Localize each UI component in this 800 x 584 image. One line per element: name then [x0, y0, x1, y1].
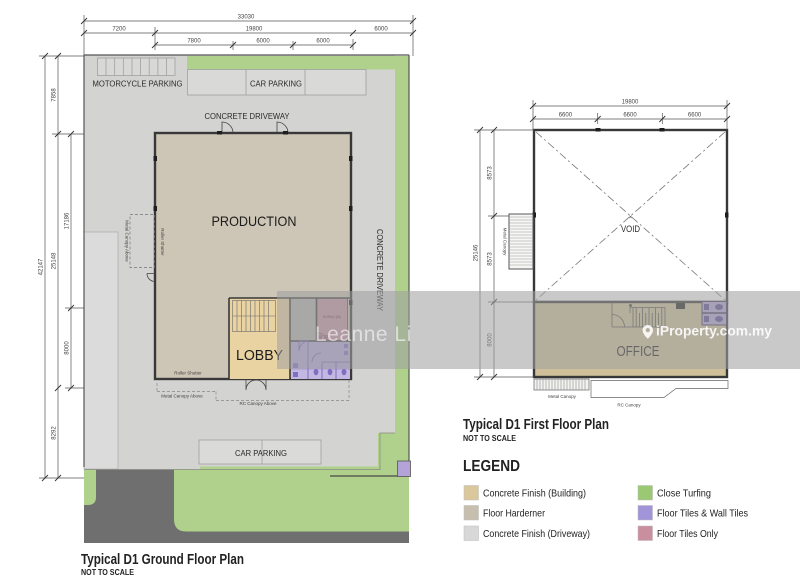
svg-text:7800: 7800 [187, 39, 201, 45]
svg-text:Metal Canopy: Metal Canopy [503, 228, 508, 257]
svg-text:NOT TO SCALE: NOT TO SCALE [81, 568, 135, 577]
svg-text:Roller Shutter: Roller Shutter [160, 228, 165, 256]
svg-text:Typical D1 First Floor Plan: Typical D1 First Floor Plan [463, 417, 609, 433]
svg-text:8292: 8292 [52, 426, 58, 440]
svg-text:CAR PARKING: CAR PARKING [235, 449, 287, 458]
svg-text:PRODUCTION: PRODUCTION [212, 213, 297, 229]
svg-text:Leanne Lia: Leanne Lia [315, 323, 424, 346]
svg-text:6000: 6000 [374, 27, 388, 33]
svg-text:7858: 7858 [52, 88, 58, 102]
svg-text:Floor Harderner: Floor Harderner [483, 508, 545, 520]
svg-text:LOBBY: LOBBY [236, 347, 283, 364]
svg-text:Floor Tiles & Wall Tiles: Floor Tiles & Wall Tiles [657, 508, 748, 520]
svg-text:RC Canopy Above: RC Canopy Above [239, 401, 277, 406]
svg-text:Metal Canopy Above: Metal Canopy Above [161, 394, 203, 399]
svg-text:CAR PARKING: CAR PARKING [250, 80, 302, 89]
svg-text:6600: 6600 [559, 113, 573, 119]
svg-text:7200: 7200 [112, 27, 126, 33]
svg-text:Concrete Finish (Driveway): Concrete Finish (Driveway) [483, 528, 590, 540]
svg-text:Concrete Finish (Building): Concrete Finish (Building) [483, 488, 586, 500]
svg-text:Roller Shutter: Roller Shutter [174, 371, 202, 376]
svg-text:Close Turfing: Close Turfing [657, 488, 711, 500]
svg-text:19800: 19800 [622, 100, 639, 106]
svg-text:iProperty.com.my: iProperty.com.my [656, 323, 772, 339]
svg-text:×: × [629, 215, 633, 221]
svg-text:6000: 6000 [316, 39, 330, 45]
svg-text:MOTORCYCLE PARKING: MOTORCYCLE PARKING [93, 80, 183, 89]
svg-text:8573: 8573 [488, 252, 494, 266]
svg-text:25148: 25148 [52, 252, 58, 269]
svg-text:LEGEND: LEGEND [463, 458, 520, 475]
svg-text:8573: 8573 [488, 166, 494, 180]
svg-text:8000: 8000 [65, 341, 71, 355]
svg-text:6600: 6600 [688, 113, 702, 119]
svg-text:Floor Tiles Only: Floor Tiles Only [657, 528, 719, 540]
svg-text:Typical D1 Ground Floor Plan: Typical D1 Ground Floor Plan [81, 552, 244, 568]
svg-text:RC Canopy: RC Canopy [617, 403, 641, 408]
svg-text:VOID: VOID [621, 224, 640, 235]
svg-text:6600: 6600 [623, 113, 637, 119]
svg-text:Metal Canopy: Metal Canopy [548, 394, 577, 399]
svg-text:6000: 6000 [256, 39, 270, 45]
svg-text:Metal Canopy Above: Metal Canopy Above [125, 220, 130, 262]
svg-text:33030: 33030 [238, 15, 255, 21]
svg-text:25146: 25146 [474, 244, 480, 261]
svg-text:19800: 19800 [246, 27, 263, 33]
svg-text:CONCRETE DRIVEWAY: CONCRETE DRIVEWAY [205, 112, 291, 121]
svg-text:17186: 17186 [65, 212, 71, 229]
svg-text:42147: 42147 [39, 258, 45, 275]
svg-text:NOT TO SCALE: NOT TO SCALE [463, 434, 517, 443]
